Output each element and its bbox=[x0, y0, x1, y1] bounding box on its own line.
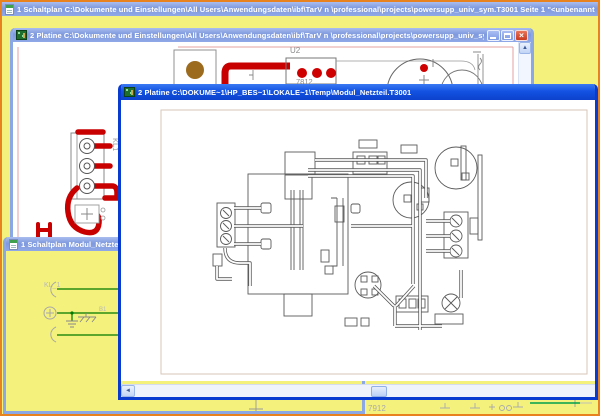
label-u2: U2 bbox=[290, 46, 301, 55]
pcb-icon bbox=[124, 87, 135, 97]
document-icon bbox=[9, 239, 18, 250]
label-7912: 7912 bbox=[368, 404, 386, 413]
window4-titlebar[interactable]: 2 Platine C:\DOKUME~1\HP_BES~1\LOKALE~1\… bbox=[121, 84, 595, 100]
window4-canvas[interactable] bbox=[121, 100, 595, 381]
minimize-button[interactable] bbox=[487, 30, 500, 41]
close-icon: × bbox=[519, 31, 524, 40]
minimize-icon bbox=[490, 37, 496, 39]
window2-titlebar[interactable]: 2 Platine C:\Dokumente und Einstellungen… bbox=[13, 28, 531, 42]
maximize-icon bbox=[504, 33, 511, 39]
window4-horizontal-scrollbar[interactable]: ◄ bbox=[121, 384, 595, 397]
application-screen: 1 Schaltplan C:\Dokumente und Einstellun… bbox=[0, 0, 600, 416]
scrollbar-thumb[interactable] bbox=[371, 386, 387, 397]
close-button[interactable]: × bbox=[515, 30, 528, 41]
pcb-icon bbox=[16, 30, 27, 40]
maximize-button[interactable] bbox=[501, 30, 514, 41]
document-icon bbox=[5, 4, 14, 15]
scroll-up-icon: ▲ bbox=[522, 45, 528, 51]
window4-board-module: 2 Platine C:\DOKUME~1\HP_BES~1\LOKALE~1\… bbox=[118, 84, 598, 400]
scroll-left-button[interactable]: ◄ bbox=[121, 385, 135, 397]
scroll-left-icon: ◄ bbox=[125, 388, 131, 394]
window1-title: 1 Schaltplan C:\Dokumente und Einstellun… bbox=[17, 5, 595, 14]
window1-titlebar[interactable]: 1 Schaltplan C:\Dokumente und Einstellun… bbox=[2, 2, 598, 16]
label-b1: B1 bbox=[99, 307, 107, 313]
window4-pcb-graphics bbox=[121, 100, 594, 384]
window4-title: 2 Platine C:\DOKUME~1\HP_BES~1\LOKALE~1\… bbox=[138, 88, 592, 97]
scroll-up-button[interactable]: ▲ bbox=[519, 42, 531, 54]
window2-title: 2 Platine C:\Dokumente und Einstellungen… bbox=[30, 31, 484, 40]
